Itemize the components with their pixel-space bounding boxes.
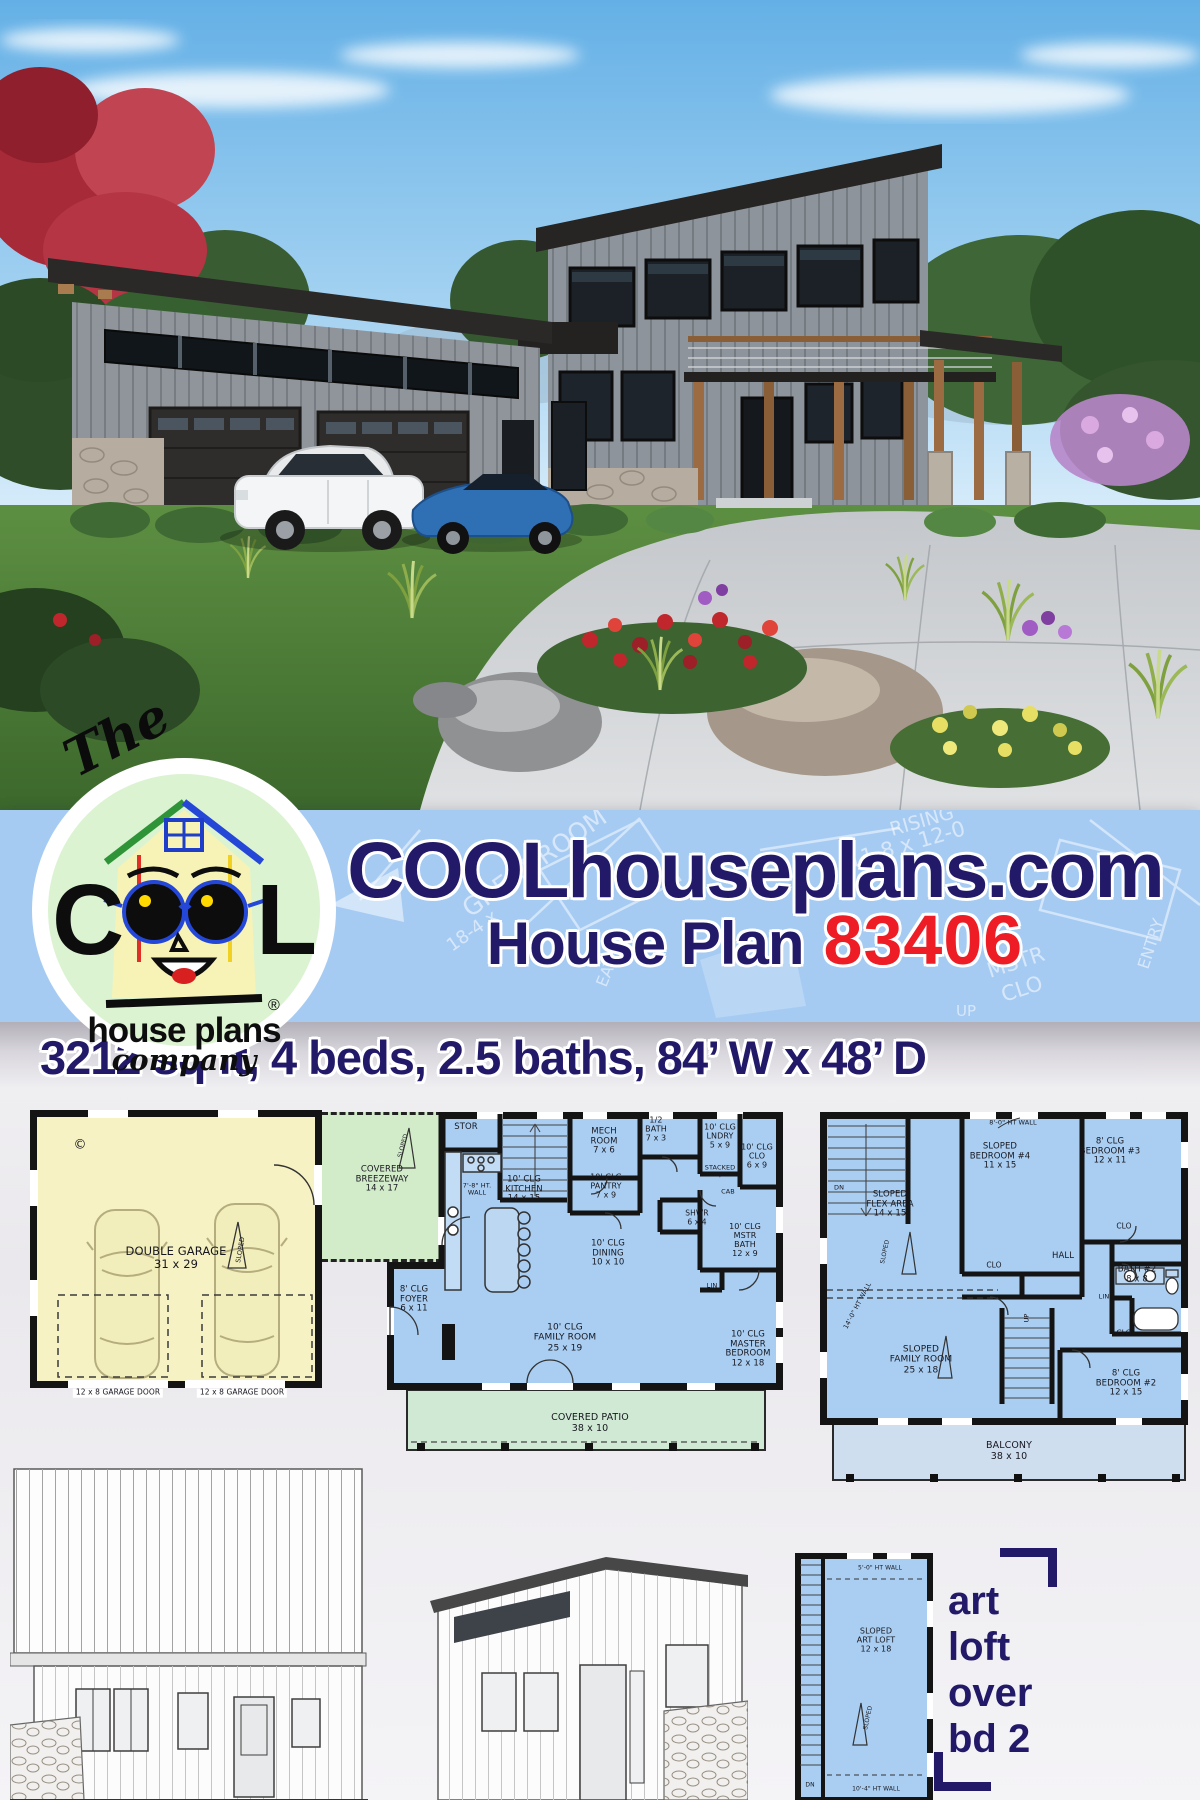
room-label-pantry: 10' CLG PANTRY 7 x 9: [590, 1172, 622, 1199]
room-label-dining: 10' CLG DINING 10 x 10: [591, 1239, 625, 1268]
parked-car-outline-left: [87, 1210, 167, 1378]
room-label-flex-area: SLOPED FLEX AREA 14 x 15: [866, 1190, 913, 1219]
elevation-drawing-right: [430, 1553, 748, 1800]
label-lin-floor2: LIN: [1099, 1293, 1110, 1300]
label-up: UP: [1023, 1314, 1030, 1323]
label-loft-ht-bottom: 10'-4" HT WALL: [852, 1787, 900, 1794]
label-loft-ht-top: 5'-0" HT WALL: [858, 1566, 902, 1573]
label-clo-c: CLO: [1116, 1330, 1131, 1339]
plan-number: 83406: [824, 900, 1024, 980]
tagline-line2: loft: [948, 1624, 1033, 1670]
garage-door-label-left: 12 x 8 GARAGE DOOR: [73, 1389, 163, 1398]
cool-house-plans-logo: The C L ® house plans compa: [18, 700, 348, 1078]
label-cab: CAB: [721, 1188, 735, 1195]
room-label-shwr: SHWR 6 x 4: [685, 1209, 708, 1226]
loft-stairs: [800, 1565, 821, 1765]
plan-title: House Plan 83406: [330, 900, 1180, 980]
elevation-drawing-left: [10, 1467, 368, 1800]
copyright-mark: ©: [73, 1139, 86, 1154]
room-label-clo1: 10' CLG CLO 6 x 9: [741, 1142, 773, 1169]
logo-company: company: [112, 1043, 259, 1077]
elevation-stone-left: [10, 1717, 84, 1800]
room-label-art-loft: SLOPED ART LOFT 12 x 18: [857, 1626, 896, 1653]
balcony-post: [930, 1474, 938, 1482]
tagline-line1: art: [948, 1578, 1033, 1624]
balcony-post: [1014, 1474, 1022, 1482]
label-clo-a: CLO: [986, 1262, 1001, 1271]
room-label-stor: STOR: [454, 1123, 478, 1133]
room-label-stacked: STACKED W/D: [705, 1165, 736, 1180]
room-label-mech: MECH ROOM 7 x 6: [590, 1127, 617, 1156]
room-label-family-room-1: 10' CLG FAMILY ROOM 25 x 19: [534, 1323, 596, 1354]
room-label-lndry: 10' CLG LNDRY 5 x 9: [704, 1122, 736, 1149]
label-ht-wall-top: 8'-0" HT WALL: [989, 1119, 1036, 1126]
pink-flower-bush: [1050, 394, 1190, 486]
room-label-foyer: 8' CLG FOYER 6 x 11: [400, 1285, 428, 1314]
label-hall: HALL: [1052, 1252, 1074, 1262]
room-label-bath2: BATH #2 8 x 8: [1118, 1265, 1157, 1284]
garage-door-label-right: 12 x 8 GARAGE DOOR: [197, 1389, 287, 1398]
fireplace: [442, 1324, 455, 1360]
elevation-entry-door: [580, 1665, 626, 1800]
balcony-post: [1172, 1474, 1180, 1482]
tagline-line4: bd 2: [948, 1716, 1033, 1762]
house-plan-pin: 11-8 x 12-0 RISING 10' CLG GREAT ROOM 18…: [0, 0, 1200, 1800]
room-label-kitchen: 10' CLG KITCHEN 14 x 15: [505, 1175, 543, 1204]
tagline-line3: over: [948, 1670, 1033, 1716]
room-label-mstr-bath: 10' CLG MSTR BATH 12 x 9: [729, 1222, 761, 1258]
balcony-post: [1098, 1474, 1106, 1482]
label-dn-floor2: DN: [834, 1184, 844, 1191]
room-label-bedroom3: 8' CLG BEDROOM #3 12 x 11: [1080, 1137, 1141, 1166]
svg-text:UP: UP: [956, 1002, 976, 1020]
room-label-half-bath: 1/2 BATH 7 x 3: [645, 1115, 667, 1142]
room-label-breezeway: COVERED BREEZEWAY 14 x 17: [356, 1165, 409, 1194]
label-loft-dn: DN: [805, 1783, 814, 1790]
room-label-family-room-2: SLOPED FAMILY ROOM 25 x 18: [890, 1345, 952, 1376]
plan-title-label: House Plan: [487, 909, 804, 978]
parked-car-outline-right: [207, 1204, 287, 1376]
label-lin-floor1: LIN: [707, 1282, 718, 1289]
logo-letter-l: L: [256, 864, 317, 976]
tagline: art loft over bd 2: [948, 1578, 1033, 1762]
room-label-double-garage: DOUBLE GARAGE 31 x 29: [126, 1245, 227, 1271]
logo-letter-c: C: [52, 864, 124, 976]
room-label-covered-patio: COVERED PATIO 38 x 10: [551, 1413, 629, 1435]
room-label-master-bedroom: 10' CLG MASTER BEDROOM 12 x 18: [725, 1331, 770, 1370]
room-label-bedroom2: 8' CLG BEDROOM #2 12 x 15: [1096, 1369, 1157, 1398]
entry-walk: [716, 498, 812, 508]
elevation-stone-right: [664, 1701, 748, 1800]
label-clo-b: CLO: [1116, 1223, 1131, 1232]
balcony-post: [846, 1474, 854, 1482]
label-ht-wall-kitchen: 7'-8" HT. WALL: [463, 1183, 492, 1198]
room-label-balcony: BALCONY 38 x 10: [986, 1441, 1032, 1463]
elevation-door-left: [234, 1697, 274, 1797]
art-loft-plan: [795, 1553, 933, 1800]
room-label-bedroom4: SLOPED BEDROOM #4 11 x 15: [970, 1142, 1031, 1171]
house-render-photo: [0, 0, 1200, 810]
